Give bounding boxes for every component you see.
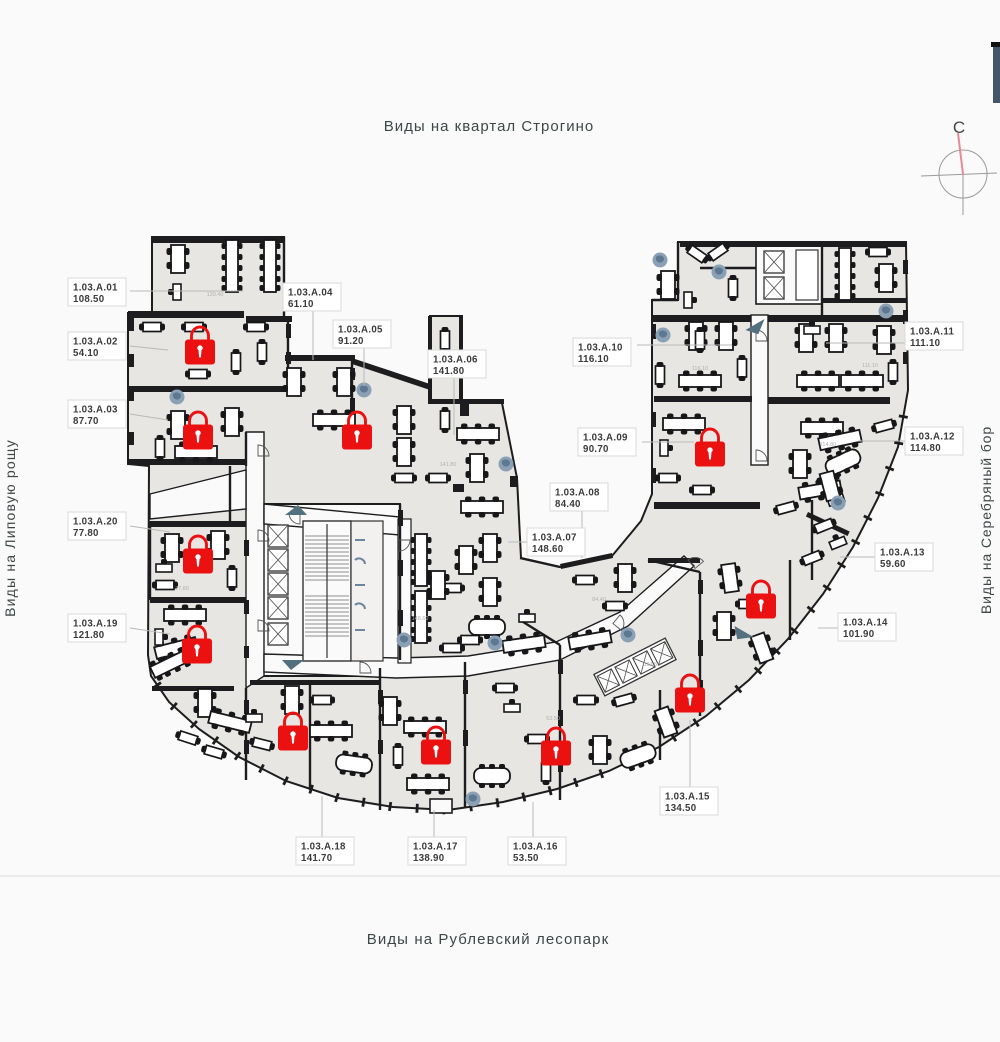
svg-text:114.80: 114.80 xyxy=(910,443,941,454)
svg-text:114.80: 114.80 xyxy=(820,442,836,448)
svg-text:121.80: 121.80 xyxy=(73,630,104,641)
svg-text:91.20: 91.20 xyxy=(338,336,364,347)
svg-text:1.03.А.19: 1.03.А.19 xyxy=(73,619,118,630)
svg-text:1.03.А.15: 1.03.А.15 xyxy=(665,792,710,803)
svg-text:1.03.А.03: 1.03.А.03 xyxy=(73,405,118,416)
svg-text:87.70: 87.70 xyxy=(73,416,99,427)
svg-text:141.80: 141.80 xyxy=(440,462,457,468)
svg-text:141.80: 141.80 xyxy=(433,366,464,377)
svg-text:101.90: 101.90 xyxy=(843,629,874,640)
svg-text:1.03.А.11: 1.03.А.11 xyxy=(910,327,954,338)
svg-text:Виды на Липовую рощу: Виды на Липовую рощу xyxy=(2,439,18,617)
svg-text:134.50: 134.50 xyxy=(665,803,696,814)
svg-text:139.40: 139.40 xyxy=(207,292,224,298)
svg-text:77.80: 77.80 xyxy=(73,528,99,539)
svg-text:53.50: 53.50 xyxy=(513,853,539,864)
svg-text:1.03.А.10: 1.03.А.10 xyxy=(578,343,623,354)
svg-text:1.03.А.02: 1.03.А.02 xyxy=(73,337,118,348)
svg-text:1.03.А.08: 1.03.А.08 xyxy=(555,488,600,499)
svg-text:148.60: 148.60 xyxy=(532,544,563,555)
svg-text:Виды на квартал Строгино: Виды на квартал Строгино xyxy=(384,118,594,135)
svg-text:1.03.А.06: 1.03.А.06 xyxy=(433,355,478,366)
svg-text:54.10: 54.10 xyxy=(73,348,99,359)
svg-text:1.03.А.12: 1.03.А.12 xyxy=(910,432,955,443)
svg-text:111.10: 111.10 xyxy=(910,338,940,349)
svg-text:1.03.А.18: 1.03.А.18 xyxy=(301,842,346,853)
svg-text:53.50: 53.50 xyxy=(546,716,560,722)
svg-text:134.50: 134.50 xyxy=(644,662,661,668)
svg-text:141.70: 141.70 xyxy=(301,853,332,864)
svg-text:1.03.А.01: 1.03.А.01 xyxy=(73,283,118,294)
svg-text:148.60: 148.60 xyxy=(412,616,429,622)
svg-text:90.70: 90.70 xyxy=(583,444,609,455)
svg-text:1.03.А.16: 1.03.А.16 xyxy=(513,842,558,853)
svg-text:1.03.А.14: 1.03.А.14 xyxy=(843,618,888,629)
svg-text:138.90: 138.90 xyxy=(413,853,444,864)
svg-text:84.40: 84.40 xyxy=(592,597,606,603)
svg-text:1.03.А.05: 1.03.А.05 xyxy=(338,325,383,336)
svg-text:1.03.А.09: 1.03.А.09 xyxy=(583,433,628,444)
svg-text:84.40: 84.40 xyxy=(555,499,581,510)
svg-text:108.50: 108.50 xyxy=(73,294,104,305)
svg-text:Виды на Рублевский лесопарк: Виды на Рублевский лесопарк xyxy=(367,931,610,948)
svg-text:77.80: 77.80 xyxy=(175,586,189,592)
svg-text:59.60: 59.60 xyxy=(880,559,906,570)
svg-text:1.03.А.17: 1.03.А.17 xyxy=(413,842,458,853)
svg-text:1.03.А.04: 1.03.А.04 xyxy=(288,288,333,299)
svg-text:1.03.А.13: 1.03.А.13 xyxy=(880,548,925,559)
svg-text:1.03.А.07: 1.03.А.07 xyxy=(532,533,577,544)
svg-text:61.10: 61.10 xyxy=(288,299,314,310)
svg-text:Виды на Серебряный бор: Виды на Серебряный бор xyxy=(978,426,994,614)
svg-text:116.10: 116.10 xyxy=(578,354,609,365)
svg-text:1.03.А.20: 1.03.А.20 xyxy=(73,517,118,528)
svg-text:116.10: 116.10 xyxy=(692,366,708,372)
svg-text:111.10: 111.10 xyxy=(862,363,878,369)
